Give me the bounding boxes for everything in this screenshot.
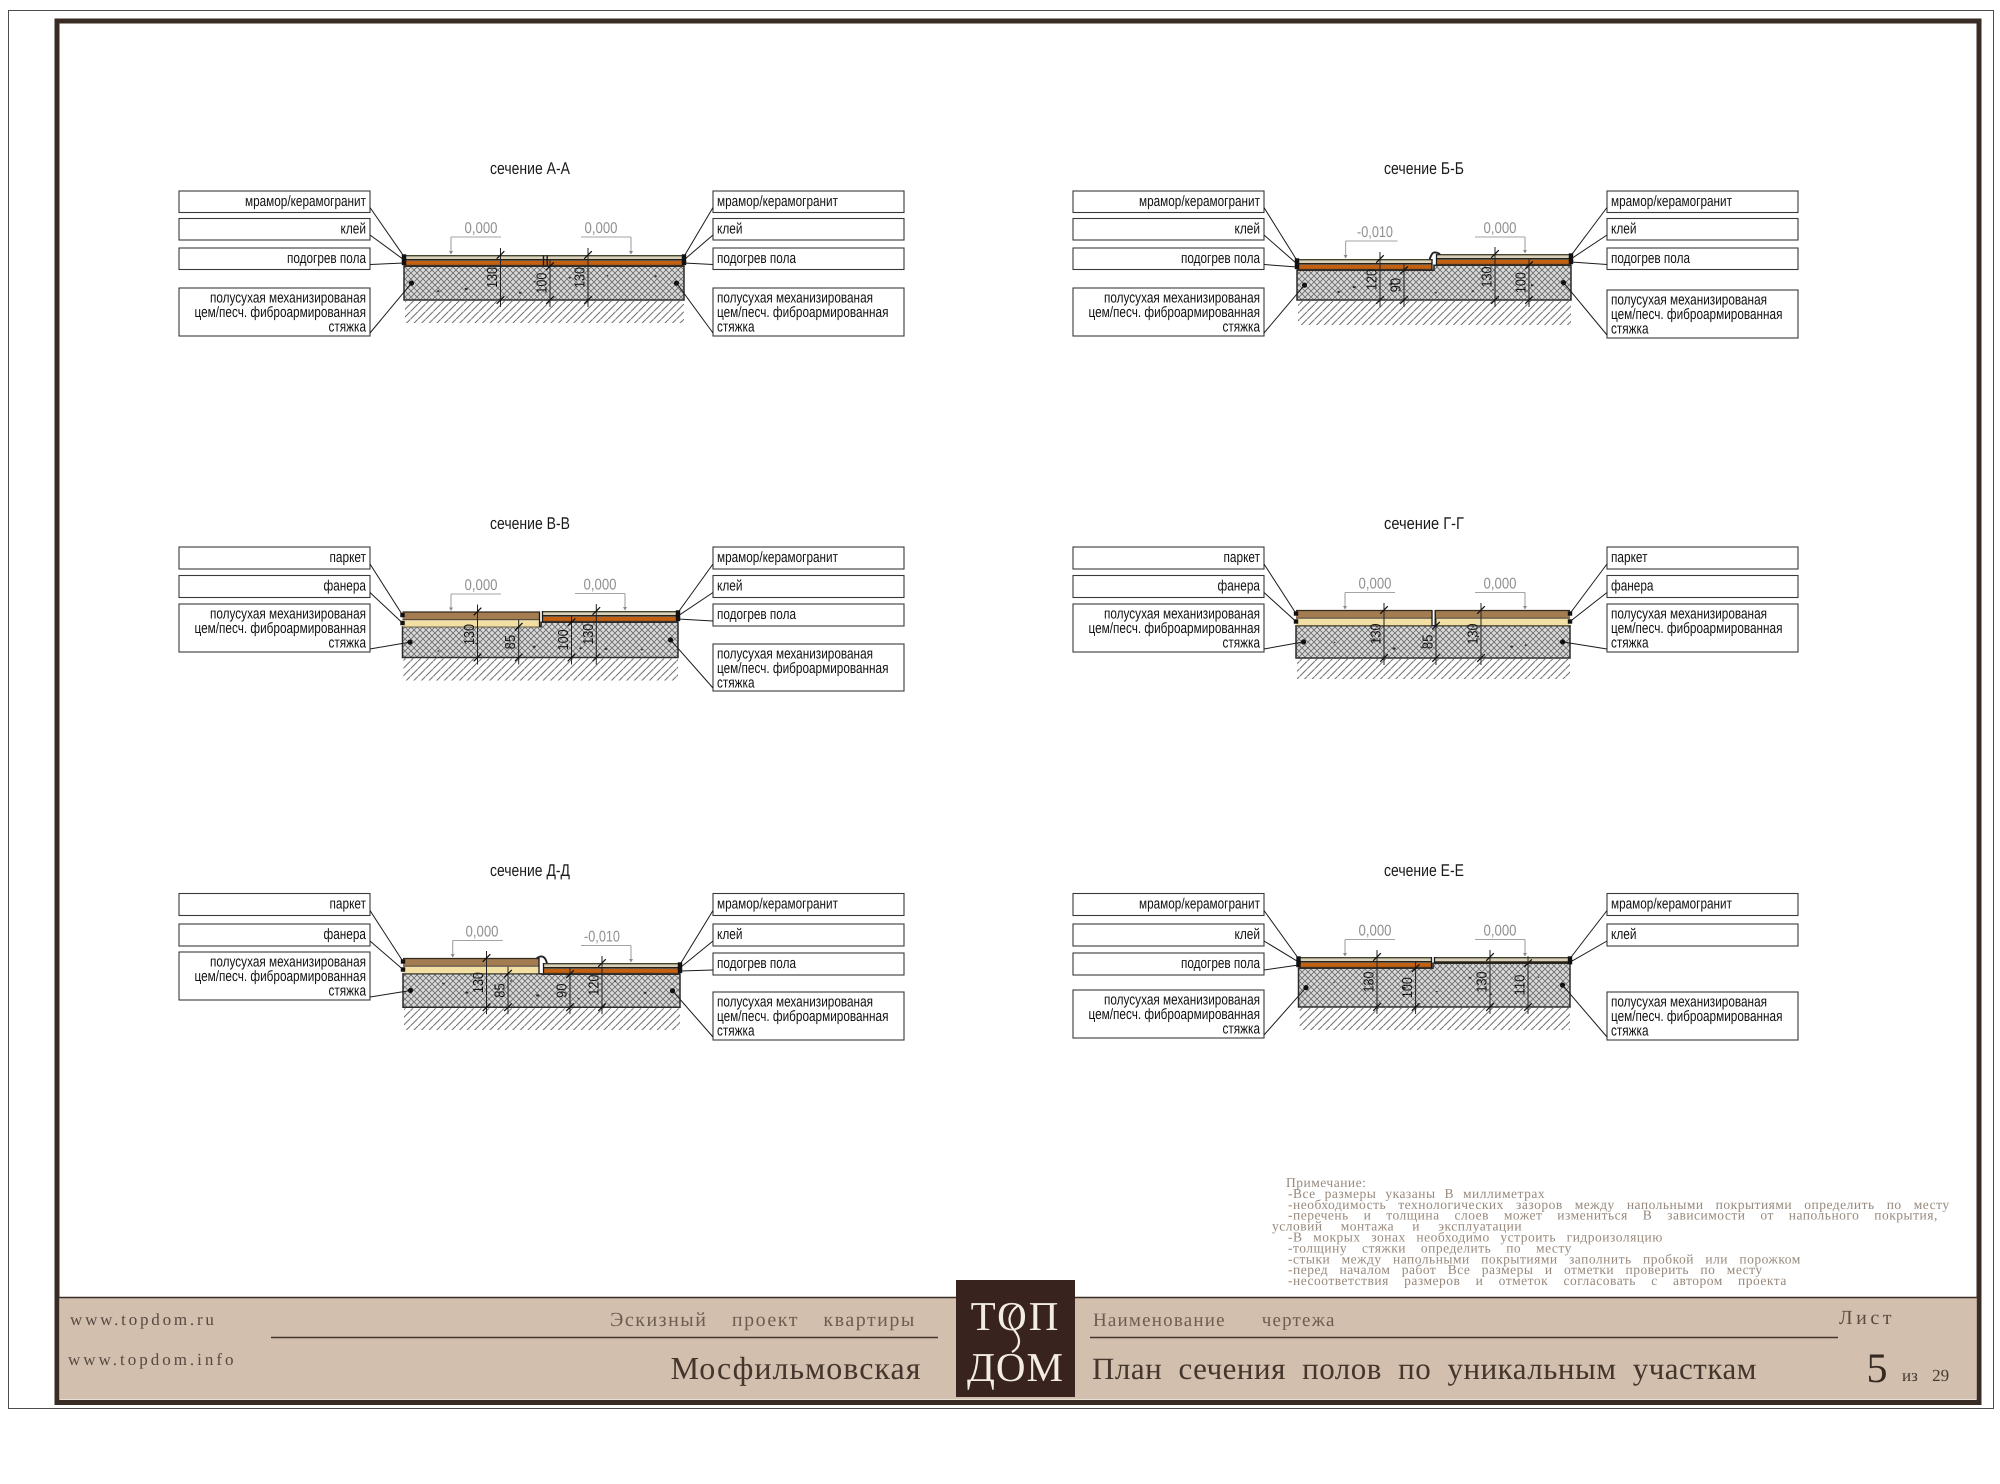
svg-text:клей: клей [717,220,743,237]
svg-text:130: 130 [573,267,589,288]
svg-text:85: 85 [1421,635,1437,650]
svg-text:клей: клей [341,220,367,237]
svg-text:паркет: паркет [330,895,367,912]
svg-text:фанера: фанера [1218,577,1261,594]
svg-text:мрамор/керамогранит: мрамор/керамогранит [717,193,838,210]
svg-text:130: 130 [462,624,478,645]
svg-text:мрамор/керамогранит: мрамор/керамогранит [717,895,838,912]
svg-text:стяжка: стяжка [717,318,755,335]
svg-text:стяжка: стяжка [1611,634,1649,651]
svg-text:100: 100 [556,629,572,650]
svg-text:клей: клей [1235,926,1261,943]
svg-text:110: 110 [1513,975,1529,996]
svg-text:стяжка: стяжка [1223,1020,1261,1037]
svg-text:-0,010: -0,010 [584,929,620,946]
svg-text:0,000: 0,000 [466,924,499,941]
svg-text:Наименование чертежа: Наименование чертежа [1093,1310,1336,1331]
svg-text:130: 130 [1466,624,1482,645]
svg-text:130: 130 [485,267,501,288]
svg-text:клей: клей [1611,220,1637,237]
svg-text:клей: клей [717,577,743,594]
svg-text:мрамор/керамогранит: мрамор/керамогранит [245,193,366,210]
svg-text:стяжка: стяжка [329,982,367,999]
svg-text:0,000: 0,000 [1484,576,1517,593]
svg-text:стяжка: стяжка [329,634,367,651]
svg-text:0,000: 0,000 [585,220,618,237]
svg-text:120: 120 [587,975,603,996]
svg-text:100: 100 [1514,272,1530,293]
svg-text:мрамор/керамогранит: мрамор/керамогранит [717,549,838,566]
svg-text:фанера: фанера [324,926,367,943]
svg-text:-несоответствия размеров и отм: -несоответствия размеров и отметок согла… [1288,1273,1787,1288]
svg-text:подогрев пола: подогрев пола [717,250,797,267]
svg-text:0,000: 0,000 [1359,576,1392,593]
svg-text:5: 5 [1867,1346,1888,1392]
svg-text:подогрев пола: подогрев пола [1181,955,1261,972]
svg-text:85: 85 [493,983,509,998]
svg-text:мрамор/керамогранит: мрамор/керамогранит [1139,193,1260,210]
svg-text:стяжка: стяжка [717,1022,755,1039]
svg-text:клей: клей [1611,926,1637,943]
svg-text:сечение Б-Б: сечение Б-Б [1384,159,1464,178]
svg-text:подогрев пола: подогрев пола [717,955,797,972]
svg-text:130: 130 [1369,624,1385,645]
svg-text:паркет: паркет [1611,549,1648,566]
svg-text:клей: клей [717,926,743,943]
svg-text:100: 100 [1400,977,1416,998]
svg-text:стяжка: стяжка [329,318,367,335]
svg-text:85: 85 [503,635,519,650]
svg-text:стяжка: стяжка [717,674,755,691]
svg-text:стяжка: стяжка [1611,320,1649,337]
svg-text:Лист: Лист [1839,1307,1895,1329]
svg-text:подогрев пола: подогрев пола [717,606,797,623]
svg-text:90: 90 [1389,278,1405,293]
svg-text:www.topdom.ru: www.topdom.ru [70,1310,217,1329]
svg-text:паркет: паркет [330,549,367,566]
svg-text:130: 130 [1362,972,1378,993]
svg-text:сечение Г-Г: сечение Г-Г [1384,514,1464,533]
svg-text:клей: клей [1235,220,1261,237]
svg-text:0,000: 0,000 [1484,923,1517,940]
svg-text:сечение Е-Е: сечение Е-Е [1384,861,1464,880]
svg-text:подогрев пола: подогрев пола [1611,250,1691,267]
svg-text:130: 130 [1480,267,1496,288]
svg-text:120: 120 [1365,269,1381,290]
svg-text:90: 90 [555,984,571,999]
svg-text:130: 130 [581,624,597,645]
svg-text:сечение Д-Д: сечение Д-Д [490,861,570,880]
svg-text:стяжка: стяжка [1223,318,1261,335]
svg-text:0,000: 0,000 [465,577,498,594]
svg-text:фанера: фанера [324,577,367,594]
svg-text:Мосфильмовская: Мосфильмовская [671,1350,922,1386]
svg-text:План сечения полов по уникальн: План сечения полов по уникальным участка… [1092,1351,1757,1386]
svg-text:подогрев пола: подогрев пола [1181,250,1261,267]
svg-text:сечение А-А: сечение А-А [490,159,571,178]
svg-text:мрамор/керамогранит: мрамор/керамогранит [1139,895,1260,912]
svg-text:www.topdom.info: www.topdom.info [68,1350,237,1369]
svg-text:0,000: 0,000 [465,220,498,237]
svg-text:стяжка: стяжка [1611,1022,1649,1039]
svg-text:сечение В-В: сечение В-В [490,514,570,533]
svg-text:100: 100 [535,273,551,294]
svg-text:130: 130 [1475,972,1491,993]
svg-text:мрамор/керамогранит: мрамор/керамогранит [1611,895,1732,912]
svg-text:подогрев пола: подогрев пола [287,250,367,267]
svg-text:-0,010: -0,010 [1357,224,1393,241]
svg-text:130: 130 [471,972,487,993]
svg-text:0,000: 0,000 [1359,923,1392,940]
svg-text:0,000: 0,000 [1484,220,1517,237]
svg-text:0,000: 0,000 [584,577,617,594]
svg-text:фанера: фанера [1611,577,1654,594]
svg-text:мрамор/керамогранит: мрамор/керамогранит [1611,193,1732,210]
svg-text:из 29: из 29 [1902,1366,1949,1385]
svg-text:стяжка: стяжка [1223,634,1261,651]
svg-text:паркет: паркет [1224,549,1261,566]
svg-text:Эскизный проект квартиры: Эскизный проект квартиры [610,1309,916,1331]
